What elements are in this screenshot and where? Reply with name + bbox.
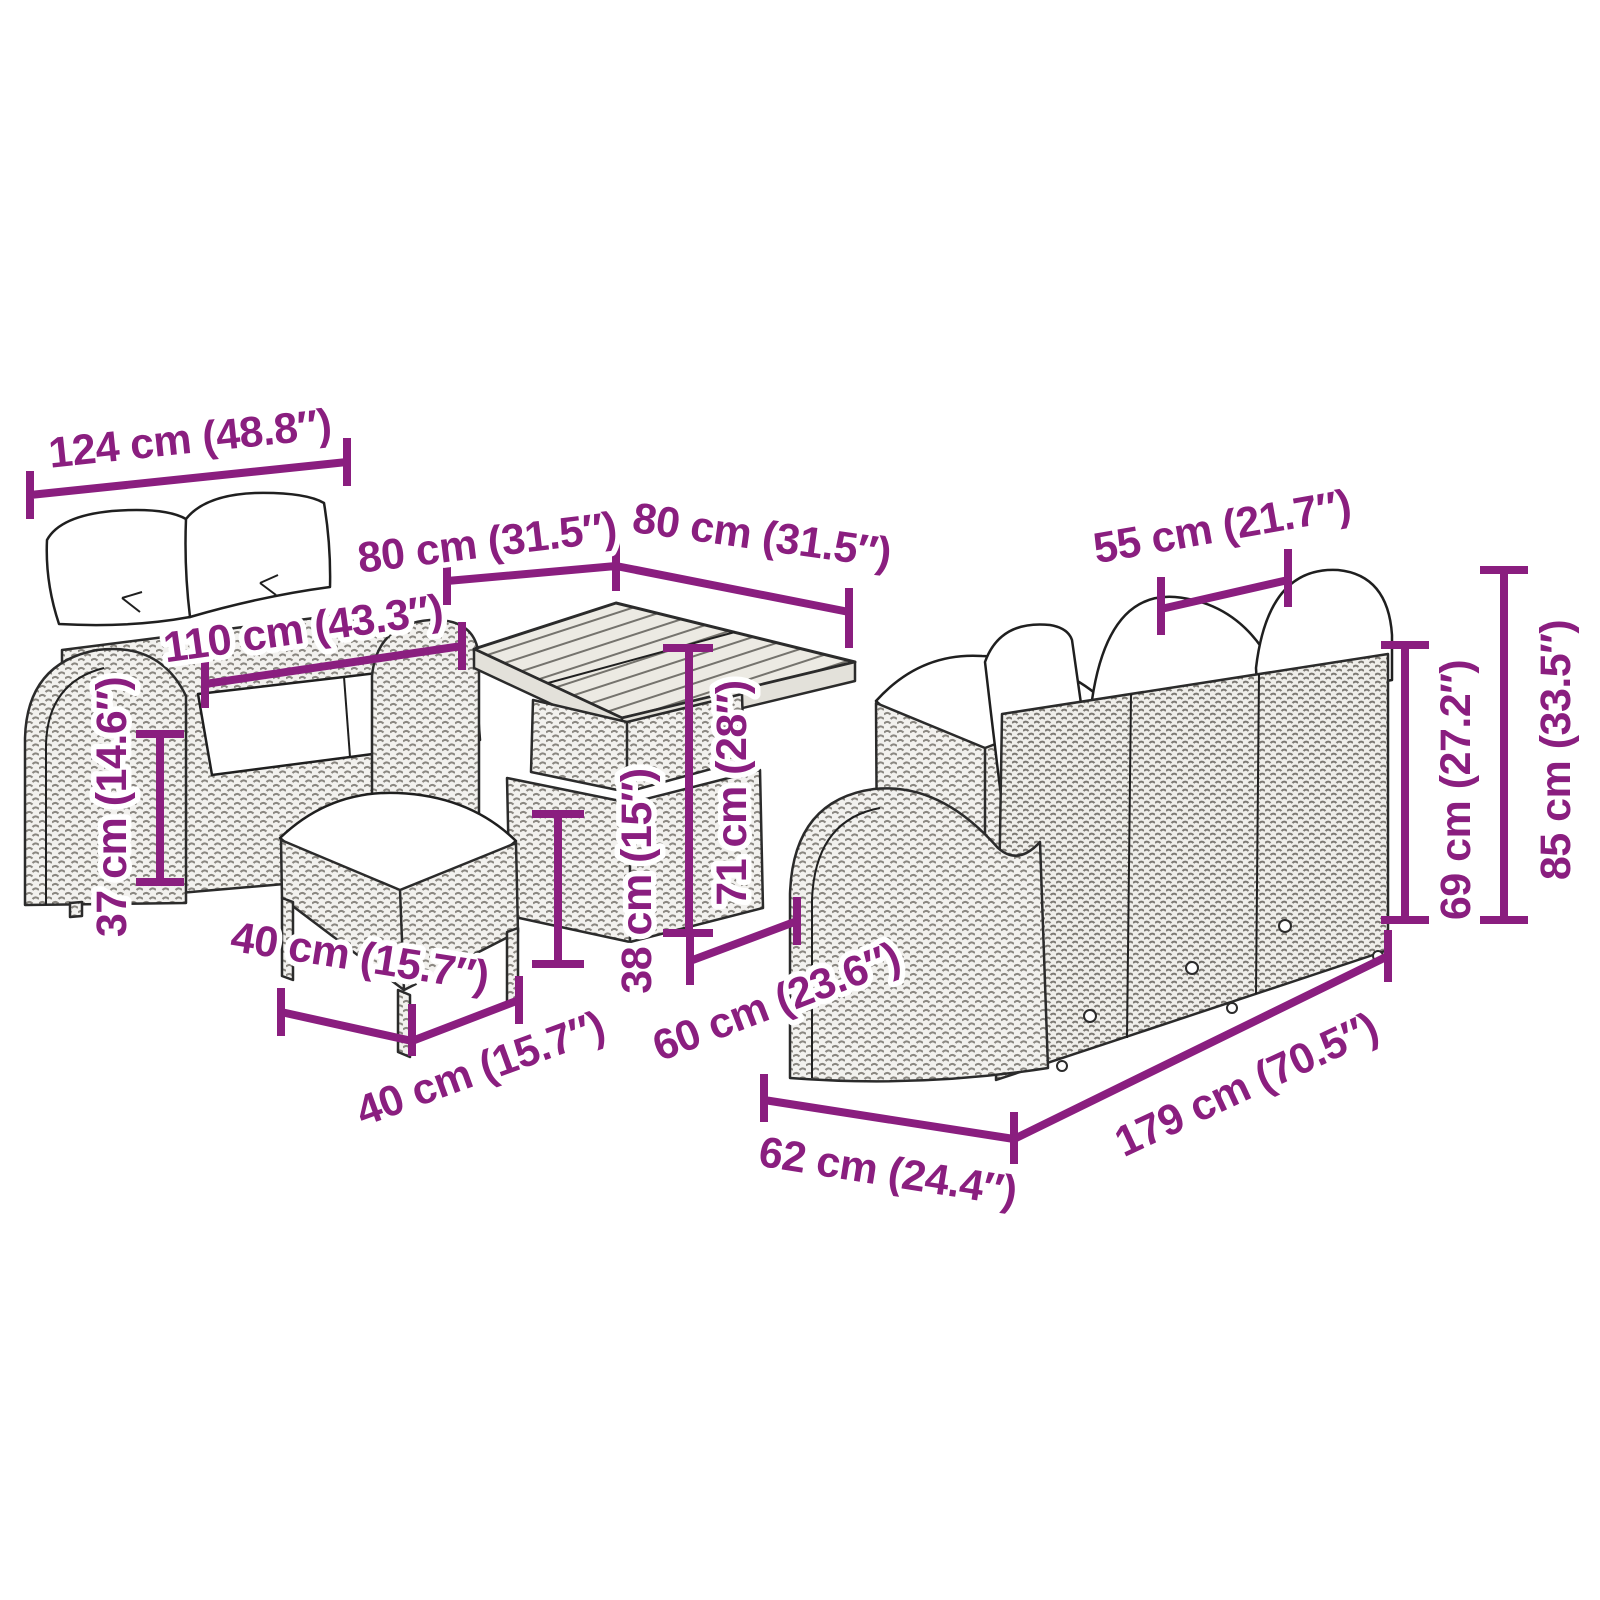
sofa2-back-pillow-left xyxy=(47,510,191,625)
dim-71cm-label: 71 cm (28″) xyxy=(708,680,756,905)
sofa3-foot-2 xyxy=(1227,1003,1237,1013)
three-seater-sofa xyxy=(790,570,1392,1081)
dim-69cm-sofa3-back-height: 69 cm (27.2″) xyxy=(1381,645,1480,920)
dim-38cm-label: 38 cm (15″) xyxy=(613,768,661,993)
sofa3-back-hole-3 xyxy=(1279,920,1291,932)
dim-62cm-label: 62 cm (24.4″) xyxy=(756,1128,1021,1216)
dim-85cm-line xyxy=(1480,570,1528,920)
sofa3-foot-1 xyxy=(1057,1061,1067,1071)
furniture-dimension-diagram: 124 cm (48.8″) 110 cm (43.3″) 80 cm (31.… xyxy=(0,0,1600,1600)
dim-85cm-label: 85 cm (33.5″) xyxy=(1532,620,1580,880)
dim-40cm-right-label: 40 cm (15.7″) xyxy=(350,1002,611,1136)
sofa3-back-panel xyxy=(996,654,1388,1080)
table-top xyxy=(474,603,855,718)
dim-69cm-label: 69 cm (27.2″) xyxy=(1432,660,1480,920)
dim-37cm-label: 37 cm (14.6″) xyxy=(88,677,136,937)
dim-55cm-label: 55 cm (21.7″) xyxy=(1090,481,1355,573)
dim-85cm-sofa3-height: 85 cm (33.5″) xyxy=(1480,570,1580,920)
dim-62cm-sofa3-depth: 62 cm (24.4″) xyxy=(756,1074,1021,1216)
dim-40cm-left-line xyxy=(281,988,412,1056)
dim-80cm-table-width: 80 cm (31.5″) xyxy=(355,503,619,605)
sofa3-back-hole-1 xyxy=(1084,1010,1096,1022)
sofa2-back-pillow-right xyxy=(186,493,331,617)
sofa3-back-hole-2 xyxy=(1186,962,1198,974)
diagram-stage: 124 cm (48.8″) 110 cm (43.3″) 80 cm (31.… xyxy=(0,0,1600,1600)
dim-80cm-right-label: 80 cm (31.5″) xyxy=(630,494,894,578)
